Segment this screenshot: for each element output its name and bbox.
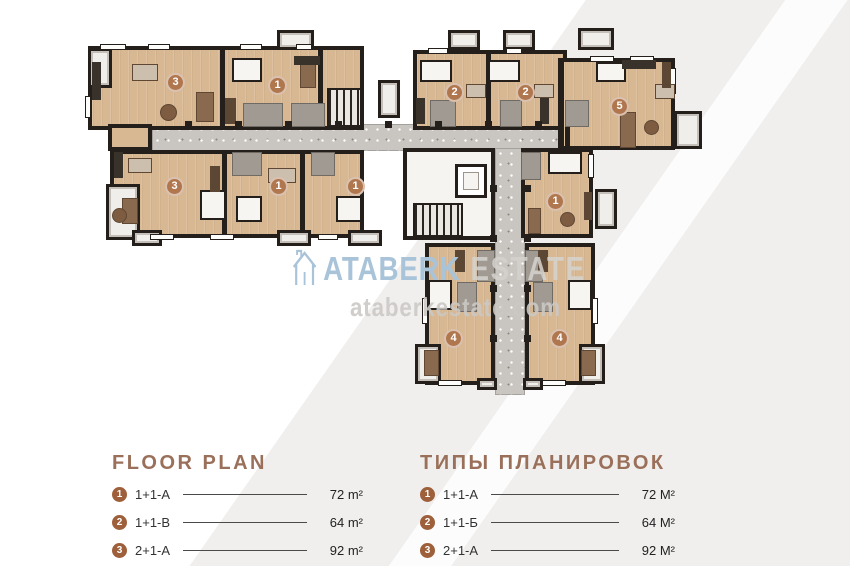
bed-furniture: [336, 196, 362, 222]
structural-column: [490, 335, 497, 342]
legend-item-leader-line: [491, 494, 619, 495]
bed-furniture: [232, 58, 262, 82]
bathroom: [500, 100, 522, 127]
structural-column: [524, 185, 531, 192]
legend-item-area: 72 m²: [317, 487, 363, 502]
bathroom: [533, 282, 553, 312]
bathroom: [243, 103, 283, 127]
balcony: [277, 230, 311, 246]
apartment-type-badge-4: 4: [550, 329, 569, 348]
sofa-furniture: [581, 350, 596, 376]
legend-item: 21+1-Б64 М²: [420, 513, 675, 531]
bed-furniture: [568, 280, 592, 310]
legend-floor-plan-title: FLOOR PLAN: [112, 452, 363, 475]
structural-column: [490, 285, 497, 292]
window: [592, 298, 598, 324]
interior-wall: [558, 58, 563, 150]
counter-furniture: [294, 56, 320, 65]
window: [296, 44, 312, 50]
sofa-furniture: [300, 62, 316, 88]
bed-furniture: [236, 196, 262, 222]
interior-wall: [300, 150, 305, 238]
balcony: [595, 189, 617, 229]
window: [588, 154, 594, 178]
counter-furniture: [622, 60, 656, 69]
structural-column: [185, 121, 192, 128]
wardrobe-furniture: [584, 192, 592, 220]
legend-item-label: 1+1-Б: [443, 515, 489, 530]
legend-item-number: 1: [112, 487, 127, 502]
structural-column: [524, 235, 531, 242]
table-furniture: [644, 120, 659, 135]
window: [100, 44, 126, 50]
legend-item-label: 1+1-А: [443, 487, 489, 502]
bed-furniture: [200, 190, 226, 220]
bathroom: [430, 100, 456, 127]
interior-wall: [565, 124, 570, 151]
legend-item-leader-line: [491, 522, 619, 523]
apartment-room: [108, 124, 152, 151]
balcony: [348, 230, 382, 246]
wardrobe-furniture: [455, 250, 465, 272]
legend-item: 32+1-A92 m²: [112, 541, 363, 559]
bed-furniture: [548, 152, 582, 174]
structural-column: [285, 121, 292, 128]
balcony: [578, 28, 614, 50]
balcony: [477, 378, 497, 390]
dining-furniture: [128, 158, 152, 173]
apartment-type-badge-2: 2: [516, 83, 535, 102]
apartment-type-badge-4: 4: [444, 329, 463, 348]
balcony: [523, 378, 543, 390]
window: [85, 96, 91, 118]
table-furniture: [160, 104, 177, 121]
legend-floor-plan: FLOOR PLAN 11+1-A72 m²21+1-B64 m²32+1-A9…: [112, 452, 363, 559]
legend-item-label: 2+1-А: [443, 543, 489, 558]
wardrobe-furniture: [662, 62, 671, 88]
apartment-type-badge-1: 1: [346, 177, 365, 196]
bathroom: [521, 152, 541, 180]
legend-item-area: 64 М²: [629, 515, 675, 530]
legend-item-area: 64 m²: [317, 515, 363, 530]
structural-column: [535, 121, 542, 128]
dining-furniture: [534, 84, 554, 98]
structural-column: [435, 121, 442, 128]
wardrobe-furniture: [210, 166, 220, 192]
bed-furniture: [488, 60, 520, 82]
dining-furniture: [466, 84, 486, 98]
legend-item-label: 1+1-B: [135, 515, 181, 530]
apartment-type-badge-1: 1: [269, 177, 288, 196]
window: [148, 44, 170, 50]
structural-column: [385, 121, 392, 128]
bathroom: [311, 152, 335, 176]
legend-item-area: 92 М²: [629, 543, 675, 558]
legend-unit-types-items: 11+1-А72 М²21+1-Б64 М²32+1-А92 М²: [420, 485, 675, 559]
bathroom: [477, 250, 495, 282]
balcony: [674, 111, 702, 149]
bathroom: [291, 103, 325, 127]
bathroom: [565, 100, 589, 127]
bathroom: [232, 152, 262, 176]
window: [240, 44, 262, 50]
window: [428, 48, 448, 54]
bathroom: [457, 282, 477, 312]
legend-item-number: 3: [420, 543, 435, 558]
sofa-furniture: [528, 208, 541, 234]
legend-item-leader-line: [183, 550, 307, 551]
apartment-type-badge-5: 5: [610, 97, 629, 116]
apartment-type-badge-2: 2: [445, 83, 464, 102]
window: [318, 234, 338, 240]
legend-unit-types-title: ТИПЫ ПЛАНИРОВОК: [420, 452, 675, 475]
balcony: [503, 30, 535, 50]
structural-column: [524, 335, 531, 342]
bed-furniture: [428, 280, 452, 310]
bed-furniture: [420, 60, 452, 82]
window: [438, 380, 462, 386]
staircase: [413, 203, 463, 237]
counter-furniture: [416, 98, 425, 124]
legend-item-leader-line: [183, 522, 307, 523]
legend-item-area: 92 m²: [317, 543, 363, 558]
structural-column: [490, 235, 497, 242]
legend-item-area: 72 М²: [629, 487, 675, 502]
window: [210, 234, 234, 240]
legend-unit-types: ТИПЫ ПЛАНИРОВОК 11+1-А72 М²21+1-Б64 М²32…: [420, 452, 675, 559]
sofa-furniture: [620, 112, 636, 148]
floor-plan-page: 31225311144 ATABERK ESTATE ataberkestate…: [0, 0, 850, 566]
counter-furniture: [92, 62, 101, 100]
elevator: [455, 164, 487, 198]
table-furniture: [112, 208, 127, 223]
legend-item-number: 1: [420, 487, 435, 502]
window: [150, 234, 174, 240]
legend-item-number: 2: [112, 515, 127, 530]
table-furniture: [560, 212, 575, 227]
window: [542, 380, 566, 386]
apartment-type-badge-1: 1: [546, 192, 565, 211]
window: [506, 48, 522, 54]
legend-item: 11+1-А72 М²: [420, 485, 675, 503]
structural-column: [524, 285, 531, 292]
apartment-type-badge-3: 3: [165, 177, 184, 196]
legend-item-label: 2+1-A: [135, 543, 181, 558]
sofa-furniture: [424, 350, 439, 376]
structural-column: [485, 121, 492, 128]
structural-column: [235, 121, 242, 128]
balcony: [378, 80, 400, 118]
sofa-furniture: [196, 92, 214, 122]
structural-column: [335, 121, 342, 128]
legend-item: 11+1-A72 m²: [112, 485, 363, 503]
legend-item-leader-line: [183, 494, 307, 495]
apartment-type-badge-3: 3: [166, 73, 185, 92]
legend-item: 21+1-B64 m²: [112, 513, 363, 531]
balcony: [448, 30, 480, 50]
apartment-type-badge-1: 1: [268, 76, 287, 95]
legend-item-number: 2: [420, 515, 435, 530]
legend-item-leader-line: [491, 550, 619, 551]
legend-item-label: 1+1-A: [135, 487, 181, 502]
counter-furniture: [114, 152, 123, 178]
staircase: [327, 88, 362, 127]
structural-column: [490, 185, 497, 192]
legend-floor-plan-items: 11+1-A72 m²21+1-B64 m²32+1-A92 m²: [112, 485, 363, 559]
legend-item-number: 3: [112, 543, 127, 558]
dining-furniture: [132, 64, 158, 81]
wardrobe-furniture: [538, 250, 548, 272]
legend-item: 32+1-А92 М²: [420, 541, 675, 559]
